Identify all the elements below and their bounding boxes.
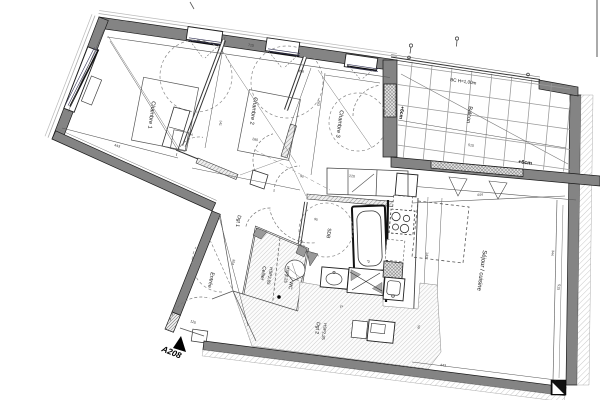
svg-text:344: 344 [550,250,555,256]
svg-text:515: 515 [556,284,561,290]
svg-text:443: 443 [440,363,446,368]
svg-text:220: 220 [349,174,355,178]
svg-text:143: 143 [424,252,429,258]
svg-text:444: 444 [477,193,483,197]
svg-text:358: 358 [298,69,304,74]
svg-text:715: 715 [248,43,254,48]
